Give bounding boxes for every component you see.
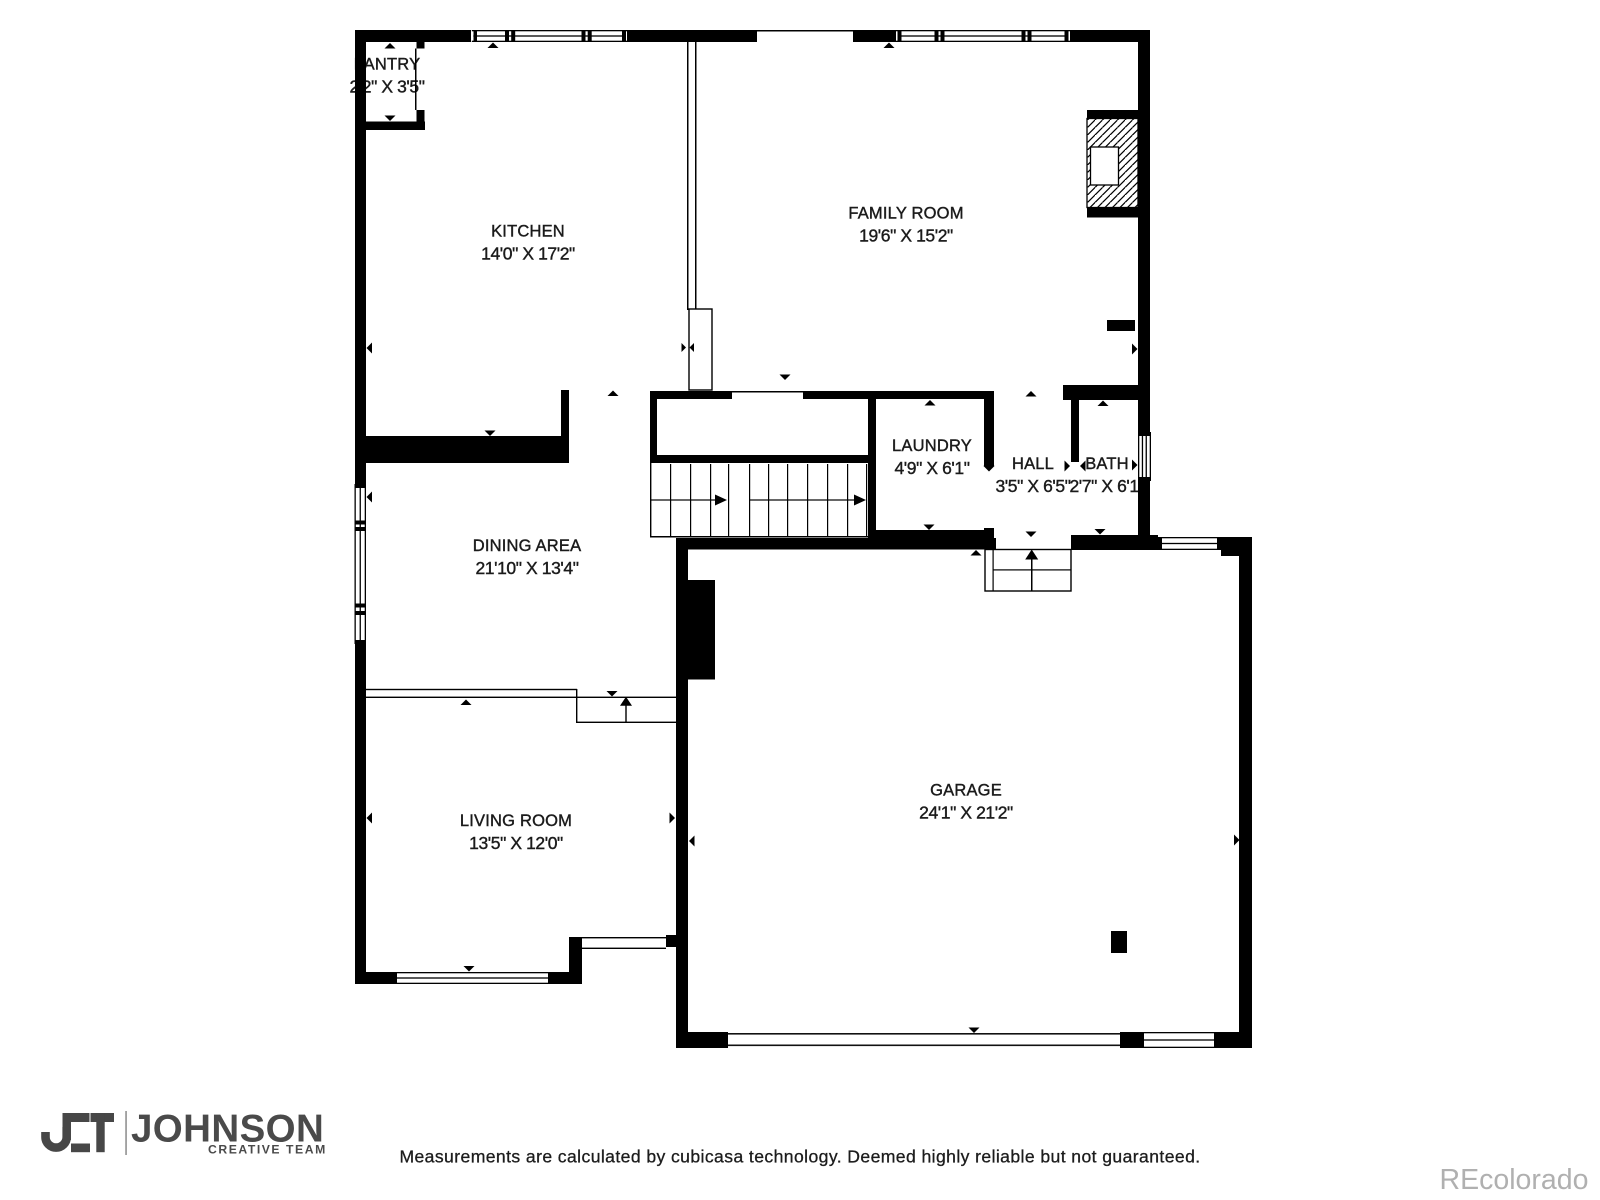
svg-text:REcolorado: REcolorado xyxy=(1440,1164,1589,1196)
svg-text:LIVING ROOM: LIVING ROOM xyxy=(460,812,572,830)
svg-text:14'0" X 17'2": 14'0" X 17'2" xyxy=(481,244,575,264)
svg-text:13'5" X 12'0": 13'5" X 12'0" xyxy=(469,833,563,853)
svg-text:21'10" X 13'4": 21'10" X 13'4" xyxy=(475,558,578,578)
svg-text:FAMILY ROOM: FAMILY ROOM xyxy=(848,205,963,223)
svg-text:KITCHEN: KITCHEN xyxy=(491,223,565,241)
svg-text:3'5" X 6'5": 3'5" X 6'5" xyxy=(995,476,1070,496)
svg-text:24'1" X 21'2": 24'1" X 21'2" xyxy=(919,803,1013,823)
svg-text:4'9" X 6'1": 4'9" X 6'1" xyxy=(894,458,969,478)
svg-text:GARAGE: GARAGE xyxy=(930,782,1002,800)
svg-text:Measurements are calculated by: Measurements are calculated by cubicasa … xyxy=(399,1147,1200,1167)
svg-text:2'7" X 6'1": 2'7" X 6'1" xyxy=(1069,476,1144,496)
svg-text:DINING AREA: DINING AREA xyxy=(473,537,582,555)
svg-text:19'6" X 15'2": 19'6" X 15'2" xyxy=(859,226,953,246)
svg-text:BATH: BATH xyxy=(1085,455,1129,473)
svg-text:CREATIVE TEAM: CREATIVE TEAM xyxy=(208,1143,327,1157)
svg-text:LAUNDRY: LAUNDRY xyxy=(892,437,972,455)
svg-text:HALL: HALL xyxy=(1012,455,1054,473)
